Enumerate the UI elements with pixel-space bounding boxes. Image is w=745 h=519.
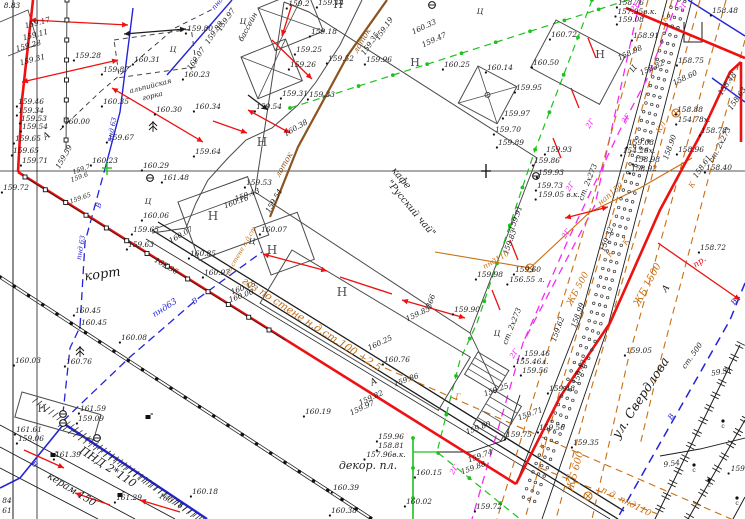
- elevation-label: 2Г: [583, 116, 597, 131]
- retaining-wall-hatch: [183, 506, 188, 510]
- map-label: ул. Свердлова: [608, 354, 672, 441]
- gravel-dot: [645, 102, 648, 105]
- elevation-label: 159.48: [549, 384, 575, 393]
- elevation-label: 160.00: [64, 117, 90, 126]
- tram-tie: [663, 492, 671, 496]
- gravel-dot: [585, 346, 588, 349]
- gravel-dot: [636, 183, 639, 186]
- map-line: [167, 0, 232, 75]
- slope-arrow: [565, 207, 608, 218]
- gravel-dot: [661, 87, 664, 90]
- gravel-dot: [638, 128, 641, 131]
- tram-tie: [681, 455, 689, 459]
- elevation-point-dot: [496, 146, 498, 148]
- elevation-point-dot: [141, 219, 143, 221]
- tram-tie: [711, 395, 719, 399]
- gravel-dot: [604, 305, 607, 308]
- elevation-point-dot: [614, 15, 616, 17]
- tram-tie: [700, 489, 708, 493]
- elevation-label: 160.29: [143, 161, 169, 170]
- elevation-label: 160.76: [384, 355, 410, 364]
- gravel-dot: [647, 93, 650, 96]
- gravel-dot: [528, 479, 531, 482]
- gravel-dot: [624, 227, 627, 230]
- building-detail: [475, 358, 506, 377]
- map-label: с: [735, 500, 739, 507]
- elevation-point-dot: [537, 431, 539, 433]
- elevation-label: 160.25: [366, 333, 394, 352]
- gravel-dot: [658, 49, 661, 52]
- map-label: К: [537, 442, 548, 453]
- map-line: [492, 290, 500, 310]
- gravel-dot: [587, 357, 590, 360]
- elevation-label: 159.54: [22, 122, 48, 131]
- elevation-label: 158.60: [671, 68, 699, 87]
- gravel-dot: [655, 86, 658, 89]
- tram-tie: [719, 456, 727, 460]
- fence-post-square: [65, 58, 69, 62]
- elevation-label: 84: [2, 496, 12, 505]
- gravel-dot: [543, 475, 546, 478]
- elevation-label: 154.26х.: [623, 146, 655, 155]
- elevation-point-dot: [11, 154, 13, 156]
- gravel-dot: [648, 112, 651, 115]
- gravel-dot: [522, 496, 525, 499]
- elevation-point-dot: [624, 354, 626, 356]
- elevation-point-dot: [79, 326, 81, 328]
- elevation-point-dot: [154, 113, 156, 115]
- elevation-point-dot: [414, 476, 416, 478]
- gravel-dot: [586, 327, 589, 330]
- fence-post-dot: [198, 405, 202, 409]
- map-label: керам 150: [45, 471, 98, 510]
- fence-post-square: [267, 328, 271, 332]
- elevation-point-dot: [16, 114, 18, 116]
- map-label: ЖБ 600: [565, 450, 587, 494]
- elevation-point-dot: [14, 433, 16, 435]
- line-node-dot: [521, 186, 525, 190]
- elevation-label: 8.83: [4, 1, 21, 10]
- elevation-label: 159.05: [626, 346, 652, 355]
- map-label: Н: [38, 404, 47, 415]
- elevation-point-dot: [62, 125, 64, 127]
- gravel-dot: [579, 344, 582, 347]
- elevation-point-dot: [728, 472, 730, 474]
- elevation-point-dot: [547, 392, 549, 394]
- fence-post-square: [206, 290, 210, 294]
- map-label: А: [40, 130, 52, 143]
- fence-post-dot: [340, 498, 344, 502]
- elevation-label: 160.30: [156, 105, 182, 114]
- gravel-dot: [534, 481, 537, 484]
- gravel-dot: [653, 95, 656, 98]
- map-label: ЖБ 1500: [631, 261, 664, 309]
- gravel-dot: [628, 190, 631, 193]
- elevation-label: 159.96: [378, 432, 404, 441]
- map-label: пнд63: [151, 297, 179, 320]
- elevation-point-dot: [114, 501, 116, 503]
- elevation-point-dot: [676, 64, 678, 66]
- fence-post-square: [247, 315, 251, 319]
- gravel-dot: [627, 171, 630, 174]
- fence-post-square: [23, 175, 27, 179]
- gravel-dot: [615, 215, 618, 218]
- fence-post-square: [65, 38, 69, 42]
- gravel-dot: [602, 267, 605, 270]
- elevation-point-dot: [20, 130, 22, 132]
- gravel-dot: [554, 412, 557, 415]
- tram-tie: [704, 408, 712, 412]
- line-node-dot: [494, 40, 498, 44]
- map-label: Ц: [240, 17, 247, 26]
- elevation-label: 159.25: [296, 45, 322, 54]
- elevation-label: 160.06: [143, 211, 169, 220]
- gravel-dot: [616, 234, 619, 237]
- elevation-label: 160.18: [192, 487, 218, 496]
- elevation-label: 159.17: [24, 15, 52, 30]
- gravel-dot: [624, 180, 627, 183]
- line-node-dot: [467, 476, 471, 480]
- line-node-dot: [562, 18, 566, 22]
- tram-tie: [669, 480, 677, 484]
- elevation-point-dot: [329, 514, 331, 516]
- gravel-dot: [649, 84, 652, 87]
- gravel-dot: [595, 293, 598, 296]
- elevation-point-dot: [288, 68, 290, 70]
- elevation-label: 159.62: [549, 315, 566, 343]
- elevation-point-dot: [506, 283, 508, 285]
- map-line: [340, 277, 392, 294]
- elevation-label: 159.97: [504, 109, 530, 118]
- elevation-label: 154.78х.: [678, 115, 710, 124]
- gravel-dot: [634, 192, 637, 195]
- elevation-point-dot: [193, 110, 195, 112]
- elevation-point-dot: [676, 153, 678, 155]
- elevation-label: 159.65: [133, 225, 159, 234]
- fence-post-square: [43, 188, 47, 192]
- elevation-point-dot: [90, 164, 92, 166]
- fence-post-square: [65, 18, 69, 22]
- elevation-point-dot: [535, 189, 537, 191]
- map-label: В: [93, 201, 104, 210]
- elevation-label: 59.31: [710, 365, 732, 378]
- building-detail: [486, 404, 513, 420]
- elevation-label: 158.88: [677, 105, 703, 114]
- tram-tie: [694, 429, 702, 433]
- gravel-dot: [657, 77, 660, 80]
- retaining-wall-hatch: [186, 509, 192, 513]
- elevation-point-dot: [675, 123, 677, 125]
- gravel-dot: [568, 408, 571, 411]
- elevation-label: 159.89: [498, 138, 524, 147]
- gravel-dot: [607, 269, 610, 272]
- gravel-dot: [632, 173, 635, 176]
- elevation-label: 159.64: [195, 147, 221, 156]
- elevation-label: 160.85: [190, 249, 216, 258]
- gravel-dot: [605, 277, 608, 280]
- fence-post-dot: [69, 322, 73, 326]
- fence-post-dot: [326, 488, 330, 492]
- elevation-label: 160.07: [185, 45, 207, 72]
- elevation-label: 159.18: [311, 27, 337, 36]
- fence-post-dot: [226, 424, 230, 428]
- elevation-label: 160.45: [75, 306, 101, 315]
- building-detail: [471, 363, 502, 382]
- gravel-dot: [654, 113, 657, 116]
- map-label: горка: [142, 90, 164, 103]
- gravel-dot: [582, 355, 585, 358]
- elevation-label: 159.09: [78, 414, 104, 423]
- elevation-label: 159.90: [454, 305, 480, 314]
- gravel-dot: [538, 454, 541, 457]
- elevation-label: 159.60: [515, 265, 541, 274]
- elevation-label: 159.19: [373, 15, 395, 42]
- elevation-label: 158.92: [631, 164, 657, 173]
- elevation-label: 158.82: [638, 58, 666, 77]
- elevation-point-dot: [309, 35, 311, 37]
- elevation-label: 160.45: [81, 318, 107, 327]
- elevation-label: 159.46: [18, 97, 44, 106]
- elevation-point-dot: [531, 66, 533, 68]
- tram-tie: [740, 419, 745, 423]
- gravel-dot: [559, 433, 562, 436]
- gravel-dot: [640, 119, 643, 122]
- line-node-dot: [444, 413, 448, 417]
- elevation-point-dot: [141, 169, 143, 171]
- fence-post-dot: [255, 442, 259, 446]
- tram-tie: [735, 345, 743, 349]
- elevation-label: 158.90: [661, 133, 678, 161]
- map-label: К: [620, 237, 631, 248]
- elevation-label: 160.39: [333, 483, 359, 492]
- gravel-dot: [590, 311, 593, 314]
- elevation-label: 159.31: [282, 89, 308, 98]
- elevation-point-dot: [307, 98, 309, 100]
- tram-tie: [686, 445, 694, 449]
- elevation-label: 160.31: [134, 55, 160, 64]
- map-label: КЛ: [653, 119, 668, 135]
- elevation-label: 158.40: [706, 163, 732, 172]
- line-node-dot: [528, 29, 532, 33]
- elevation-point-dot: [536, 176, 538, 178]
- map-label: Н: [257, 135, 267, 149]
- gravel-dot: [588, 338, 591, 341]
- gravel-dot: [594, 321, 597, 324]
- elevation-label: 159.63: [128, 240, 154, 249]
- elevation-label: 160.08: [121, 333, 147, 342]
- elevation-label: 158.91: [633, 31, 659, 40]
- line-node-dot: [533, 148, 537, 152]
- tram-tie: [733, 431, 741, 435]
- elevation-point-dot: [161, 181, 163, 183]
- gravel-dot: [619, 225, 622, 228]
- elevation-label: 159.95: [516, 83, 542, 92]
- map-label: Ц: [627, 63, 638, 74]
- elevation-label: 160.15: [416, 468, 442, 477]
- gravel-dot: [615, 261, 618, 264]
- elevation-label: 160.35: [103, 97, 129, 106]
- fence-post-dot: [169, 386, 173, 390]
- elevation-point-dot: [280, 97, 282, 99]
- fence-post-square: [65, 0, 69, 2]
- map-label: Ц: [494, 329, 501, 338]
- elevation-point-dot: [326, 62, 328, 64]
- retaining-wall-hatch: [188, 510, 193, 514]
- gravel-dot: [540, 464, 543, 467]
- fence-post-dot: [312, 479, 316, 483]
- elevation-point-dot: [710, 14, 712, 16]
- gravel-dot: [525, 487, 528, 490]
- elevation-point-dot: [571, 446, 573, 448]
- elevation-label: 159.: [731, 464, 745, 473]
- map-label: бассейн: [236, 11, 259, 43]
- elevation-point-dot: [520, 374, 522, 376]
- retaining-wall-hatch: [48, 410, 54, 414]
- elevation-label: 159.31: [19, 52, 46, 67]
- retaining-wall-hatch: [148, 483, 153, 487]
- elevation-point-dot: [132, 63, 134, 65]
- tram-tie: [698, 492, 706, 496]
- gravel-dot: [638, 174, 641, 177]
- elevation-point-dot: [244, 186, 246, 188]
- gravel-dot: [602, 314, 605, 317]
- map-label: ст. 500: [680, 340, 705, 370]
- gravel-dot: [651, 76, 654, 79]
- elevation-point-dot: [13, 364, 15, 366]
- elevation-point-dot: [1, 191, 3, 193]
- elevation-label: 160.25: [444, 60, 470, 69]
- fence-post-square: [64, 200, 68, 204]
- tram-tie: [731, 354, 739, 358]
- fence-post-dot: [212, 414, 216, 418]
- line-node-dot: [288, 106, 292, 110]
- elevation-label: 158.96: [678, 145, 704, 154]
- gravel-dot: [544, 456, 547, 459]
- gravel-dot: [644, 129, 647, 132]
- map-label: декор. пл.: [339, 459, 397, 472]
- building-detail: [468, 369, 499, 388]
- retaining-wall-hatch: [194, 515, 200, 519]
- elevation-point-dot: [620, 154, 622, 156]
- elevation-point-dot: [101, 73, 103, 75]
- fence-post-square: [186, 277, 190, 281]
- elevation-label: 159.56: [539, 423, 565, 432]
- elevation-label: 159.43: [571, 358, 588, 386]
- elevation-point-dot: [126, 248, 128, 250]
- elevation-label: 159.56: [522, 366, 548, 375]
- elevation-label: 159.70: [495, 125, 521, 134]
- retaining-wall-hatch: [193, 513, 198, 517]
- gravel-dot: [603, 286, 606, 289]
- tram-tie: [729, 357, 737, 361]
- elevation-label: 159.2: [288, 0, 309, 8]
- elevation-label: 160.76: [66, 357, 92, 366]
- retaining-wall-hatch: [63, 426, 68, 430]
- elevation-label: 160.33: [410, 17, 438, 36]
- fence-post-dot: [27, 294, 31, 298]
- fence-post-dot: [141, 368, 145, 372]
- tram-tie: [688, 442, 696, 446]
- arrowhead-icon: [124, 31, 130, 37]
- gravel-dot: [549, 458, 552, 461]
- map-label: с: [692, 467, 696, 474]
- gravel-dot: [649, 131, 652, 134]
- elevation-label: 157.96в.к.: [366, 450, 405, 459]
- elevation-label: 159.72: [476, 502, 502, 511]
- elevation-label: 161.59: [80, 404, 106, 413]
- gravel-dot: [613, 224, 616, 227]
- elevation-point-dot: [704, 171, 706, 173]
- elevation-label: 61: [2, 506, 11, 515]
- elevation-point-dot: [493, 133, 495, 135]
- line-node-dot: [425, 62, 429, 66]
- elevation-label: 161.48: [163, 173, 189, 182]
- elevation-point-dot: [19, 122, 21, 124]
- gravel-dot: [665, 70, 668, 73]
- tram-tie: [668, 483, 676, 487]
- elevation-point-dot: [101, 105, 103, 107]
- tram-tie: [737, 341, 745, 345]
- gravel-dot: [609, 288, 612, 291]
- elevation-point-dot: [119, 341, 121, 343]
- gravel-dot: [588, 319, 591, 322]
- elevation-point-dot: [485, 71, 487, 73]
- elevation-point-dot: [286, 7, 288, 9]
- elevation-point-dot: [259, 233, 261, 235]
- tram-tie: [661, 496, 669, 500]
- elevation-label: 159.35: [573, 438, 599, 447]
- gravel-dot: [601, 295, 604, 298]
- gravel-dot: [604, 258, 607, 261]
- gravel-dot: [656, 105, 659, 108]
- fence-post-dot: [55, 312, 59, 316]
- elevation-label: 159.52: [328, 54, 354, 63]
- fence-post-square: [145, 251, 149, 255]
- tram-tie: [726, 444, 734, 448]
- gravel-dot: [625, 199, 628, 202]
- elevation-point-dot: [404, 505, 406, 507]
- gravel-dot: [606, 296, 609, 299]
- elevation-label: 160.72: [551, 30, 577, 39]
- map-label: Н: [208, 209, 218, 223]
- elevation-point-dot: [616, 23, 618, 25]
- elevation-label: 2Г: [447, 462, 461, 477]
- elevation-label: 158.75: [678, 56, 704, 65]
- elevation-label: 158.72: [700, 243, 726, 252]
- elevation-label: 159.93: [546, 145, 572, 154]
- gravel-dot: [533, 500, 536, 503]
- gravel-dot: [659, 96, 662, 99]
- elevation-label: 159.26: [290, 60, 316, 69]
- elevation-point-dot: [698, 251, 700, 253]
- tram-tie: [700, 417, 708, 421]
- gravel-dot: [611, 279, 614, 282]
- gravel-dot: [540, 483, 543, 486]
- elevation-label: 159.47: [420, 30, 448, 49]
- gravel-dot: [630, 182, 633, 185]
- elevation-label: 160.34: [195, 102, 221, 111]
- line-node-dot: [391, 73, 395, 77]
- tram-tie: [692, 433, 700, 437]
- gravel-dot: [573, 361, 576, 364]
- elevation-label: 2Г: [676, 0, 690, 14]
- building-outline: [260, 250, 470, 410]
- retaining-wall-hatch: [78, 436, 83, 440]
- elevation-label: 159.65: [15, 134, 41, 143]
- elevation-label: 159.86: [534, 156, 560, 165]
- elevation-label: 155.46л.: [516, 357, 549, 366]
- line-node-dot: [454, 374, 458, 378]
